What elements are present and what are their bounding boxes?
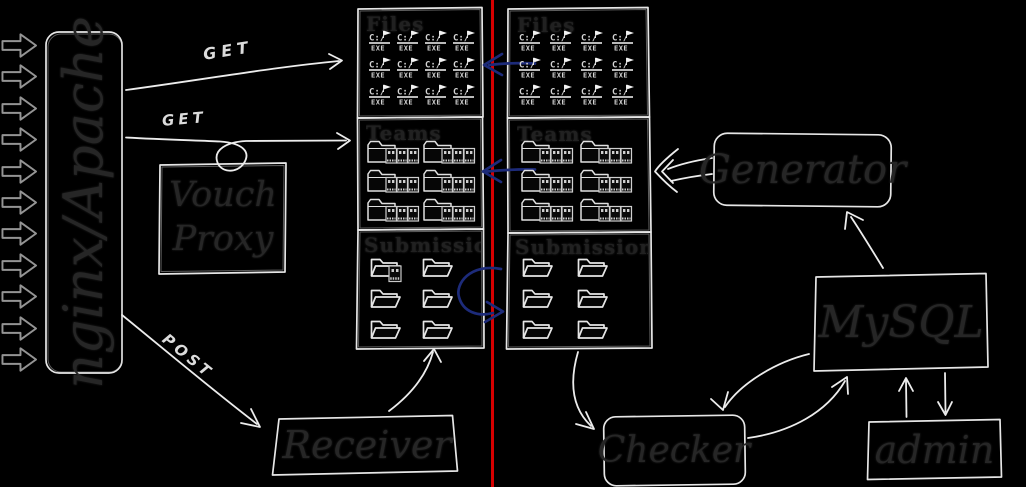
folder-icon [576, 286, 608, 310]
exe-icon-top-text: C:/ [612, 61, 628, 71]
folder-icon [369, 317, 401, 341]
exe-file-icon: C:/ EXE [611, 84, 635, 106]
exe-file-icon: C:/ EXE [611, 30, 635, 52]
receiver-label: Receiver [282, 423, 451, 467]
exe-icon-bottom-text: EXE [399, 45, 413, 53]
teams-right-icons [520, 136, 638, 222]
incoming-traffic-arrow-icon [1, 63, 38, 90]
exe-icon-bottom-text: EXE [371, 45, 385, 53]
arrow-admin-to-mysql [899, 378, 913, 417]
exe-icon-top-text: C:/ [612, 34, 628, 44]
exe-icon-top-text: C:/ [453, 61, 469, 71]
submissions-left-icons [369, 255, 473, 341]
team-folder-icon [366, 194, 420, 222]
folder-icon [369, 286, 401, 310]
arrow-mysql-to-checker [711, 354, 809, 410]
exe-file-icon: C:/ EXE [549, 57, 573, 79]
folder-icon [421, 255, 453, 279]
incoming-traffic-arrow-icon [1, 346, 38, 373]
exe-file-icon: C:/ EXE [580, 57, 604, 79]
diagram-strokes [0, 0, 1026, 487]
incoming-traffic-arrow-icon [1, 189, 38, 216]
team-folder-icon [520, 165, 574, 193]
exe-file-icon: C:/ EXE [518, 84, 542, 106]
exe-file-icon: C:/ EXE [368, 30, 392, 52]
exe-icon-top-text: C:/ [612, 88, 628, 98]
team-folder-icon [422, 136, 476, 164]
node-mysql: MySQL [815, 274, 987, 370]
exe-icon-bottom-text: EXE [552, 72, 566, 80]
exe-icon-top-text: C:/ [397, 88, 413, 98]
exe-icon-bottom-text: EXE [427, 72, 441, 80]
exe-file-icon: C:/ EXE [452, 30, 476, 52]
exe-file-icon: C:/ EXE [580, 30, 604, 52]
exe-icon-bottom-text: EXE [427, 45, 441, 53]
exe-file-icon: C:/ EXE [452, 57, 476, 79]
incoming-traffic-arrow-icon [1, 220, 38, 247]
exe-file-icon: C:/ EXE [396, 57, 420, 79]
exe-icon-bottom-text: EXE [455, 72, 469, 80]
exe-file-icon: C:/ EXE [518, 30, 542, 52]
exe-file-icon: C:/ EXE [580, 84, 604, 106]
exe-icon-top-text: C:/ [425, 88, 441, 98]
node-receiver: Receiver [277, 414, 457, 475]
arrow-post [122, 315, 260, 427]
submissions-left-label: Submissions [364, 233, 481, 257]
folder-icon [421, 317, 453, 341]
exe-icon-bottom-text: EXE [521, 72, 535, 80]
admin-label: admin [875, 428, 995, 472]
exe-file-icon: C:/ EXE [368, 57, 392, 79]
exe-icon-top-text: C:/ [519, 61, 535, 71]
team-folder-icon [579, 165, 633, 193]
nginx-apache-label: nginx/Apache [52, 16, 115, 389]
exe-file-icon: C:/ EXE [424, 84, 448, 106]
incoming-traffic-arrow-icon [1, 283, 38, 310]
exe-icon-top-text: C:/ [453, 34, 469, 44]
exe-file-icon: C:/ EXE [368, 84, 392, 106]
team-folder-icon [366, 165, 420, 193]
exe-icon-top-text: C:/ [369, 88, 385, 98]
folder-icon [421, 286, 453, 310]
exe-icon-top-text: C:/ [397, 34, 413, 44]
exe-file-icon: C:/ EXE [518, 57, 542, 79]
node-checker: Checker [603, 415, 745, 485]
folder-icon [576, 317, 608, 341]
exe-icon-top-text: C:/ [453, 88, 469, 98]
exe-file-icon: C:/ EXE [396, 84, 420, 106]
exe-icon-top-text: C:/ [425, 61, 441, 71]
node-nginx-apache: nginx/Apache [45, 31, 122, 374]
exe-icon-top-text: C:/ [397, 61, 413, 71]
exe-file-icon: C:/ EXE [549, 84, 573, 106]
incoming-traffic-arrow-icon [1, 126, 38, 153]
exe-icon-bottom-text: EXE [399, 99, 413, 107]
exe-file-icon: C:/ EXE [424, 57, 448, 79]
checker-label: Checker [598, 430, 751, 471]
exe-icon-bottom-text: EXE [614, 99, 628, 107]
arrow-mysql-to-generator [845, 212, 883, 268]
incoming-traffic-arrow-icon [1, 95, 38, 122]
arrow-receiver-to-submissions [389, 349, 441, 411]
exe-icon-bottom-text: EXE [583, 45, 597, 53]
vouch-proxy-label: Vouch Proxy [160, 174, 286, 262]
exe-icon-bottom-text: EXE [552, 45, 566, 53]
submissions-right-icons [521, 255, 631, 341]
node-generator: Generator [714, 134, 891, 206]
exe-icon-top-text: C:/ [425, 34, 441, 44]
exe-file-icon: C:/ EXE [611, 57, 635, 79]
exe-icon-top-text: C:/ [369, 61, 385, 71]
team-folder-icon [366, 136, 420, 164]
exe-icon-bottom-text: EXE [552, 99, 566, 107]
arrow-mysql-to-admin [938, 373, 952, 415]
exe-icon-bottom-text: EXE [371, 72, 385, 80]
mysql-label: MySQL [818, 297, 983, 348]
team-folder-icon [520, 136, 574, 164]
incoming-traffic-arrow-icon [1, 158, 38, 185]
files-left-icons: C:/ EXE C:/ EXE C:/ EXE C:/ EXE C:/ EXE … [366, 30, 478, 106]
exe-icon-bottom-text: EXE [371, 99, 385, 107]
team-folder-icon [422, 194, 476, 222]
node-vouch-proxy: Vouch Proxy [160, 163, 286, 273]
exe-icon-top-text: C:/ [581, 88, 597, 98]
teams-left-icons [366, 136, 478, 222]
exe-icon-top-text: C:/ [550, 61, 566, 71]
exe-icon-bottom-text: EXE [399, 72, 413, 80]
exe-icon-bottom-text: EXE [521, 99, 535, 107]
exe-icon-top-text: C:/ [550, 88, 566, 98]
incoming-traffic-arrow-icon [1, 315, 38, 342]
incoming-traffic-arrow-icon [1, 252, 38, 279]
exe-icon-top-text: C:/ [581, 34, 597, 44]
generator-label: Generator [699, 147, 906, 193]
arrow-checker-to-mysql [748, 377, 848, 438]
exe-icon-bottom-text: EXE [614, 72, 628, 80]
architecture-diagram: nginx/Apache Vouch Proxy Generator MySQL… [0, 0, 1026, 487]
incoming-traffic-arrows [1, 32, 38, 373]
team-folder-icon [520, 194, 574, 222]
exe-icon-top-text: C:/ [581, 61, 597, 71]
exe-icon-top-text: C:/ [519, 88, 535, 98]
exe-icon-bottom-text: EXE [521, 45, 535, 53]
arrow-get-top [126, 54, 342, 90]
exe-icon-bottom-text: EXE [455, 99, 469, 107]
team-folder-icon [579, 194, 633, 222]
exe-icon-top-text: C:/ [550, 34, 566, 44]
exe-file-icon: C:/ EXE [549, 30, 573, 52]
exe-file-icon: C:/ EXE [396, 30, 420, 52]
folder-icon [521, 255, 553, 279]
exe-icon-top-text: C:/ [519, 34, 535, 44]
exe-icon-bottom-text: EXE [455, 45, 469, 53]
exe-icon-bottom-text: EXE [583, 72, 597, 80]
folder-icon [521, 286, 553, 310]
arrow-submissions-to-checker [573, 352, 594, 429]
folder-icon [576, 255, 608, 279]
team-folder-icon [422, 165, 476, 193]
exe-icon-bottom-text: EXE [614, 45, 628, 53]
exe-icon-bottom-text: EXE [583, 99, 597, 107]
exe-icon-bottom-text: EXE [427, 99, 441, 107]
exe-file-icon: C:/ EXE [452, 84, 476, 106]
team-folder-icon [579, 136, 633, 164]
incoming-traffic-arrow-icon [1, 32, 38, 59]
files-right-icons: C:/ EXE C:/ EXE C:/ EXE C:/ EXE C:/ EXE … [514, 30, 638, 106]
folder-icon [521, 317, 553, 341]
node-admin: admin [868, 420, 1001, 479]
submission-exe-file-icon [388, 265, 402, 287]
exe-file-icon: C:/ EXE [424, 30, 448, 52]
exe-icon-top-text: C:/ [369, 34, 385, 44]
